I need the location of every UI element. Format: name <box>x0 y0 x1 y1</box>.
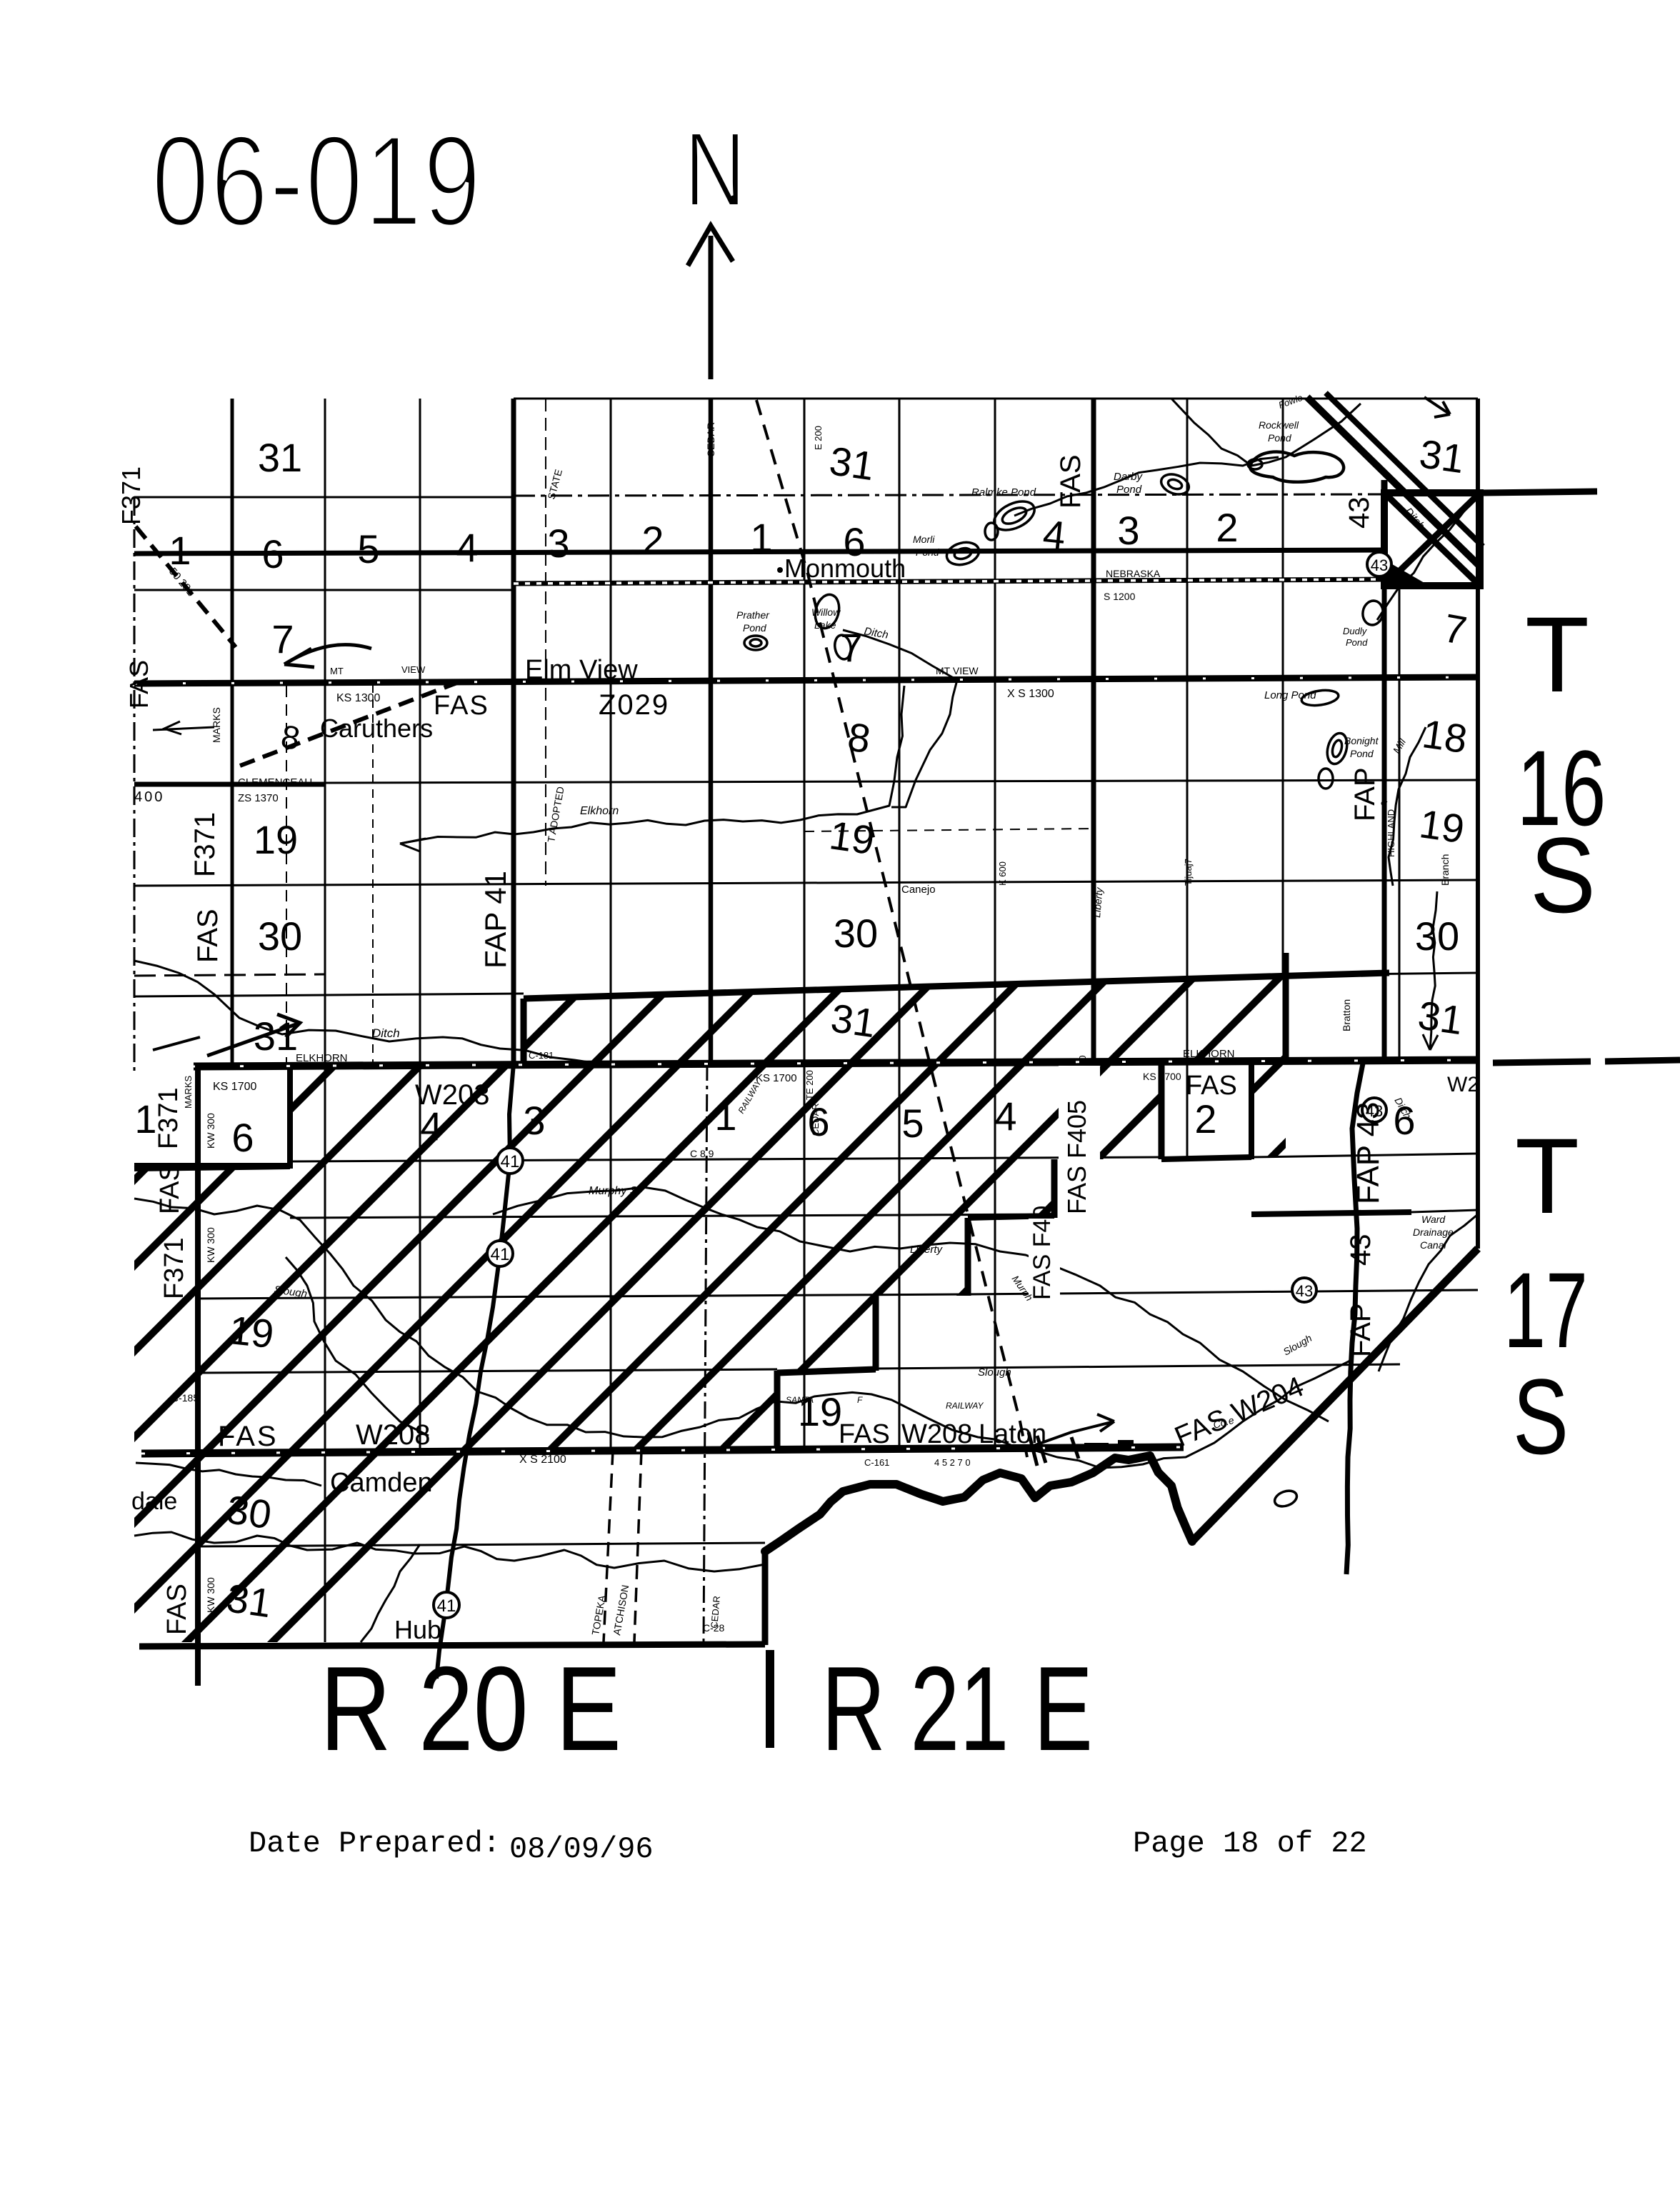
svg-text:7: 7 <box>840 625 862 670</box>
svg-text:43: 43 <box>1371 556 1388 574</box>
svg-text:S 1200: S 1200 <box>1104 591 1136 602</box>
svg-text:FAS F40: FAS F40 <box>1029 1206 1056 1300</box>
svg-text:T: T <box>1515 1116 1579 1236</box>
svg-text:W2: W2 <box>1447 1073 1479 1096</box>
svg-text:C-28: C-28 <box>703 1622 725 1634</box>
svg-text:FAP: FAP <box>1345 1303 1376 1357</box>
svg-text:Prather: Prather <box>736 609 770 621</box>
svg-text:E 200: E 200 <box>813 426 824 450</box>
svg-text:CLEMENCEAU: CLEMENCEAU <box>238 776 312 789</box>
svg-text:Pond: Pond <box>743 622 767 634</box>
svg-text:CEDAR: CEDAR <box>705 422 716 457</box>
svg-text:Rockwell: Rockwell <box>1259 419 1299 431</box>
svg-text:FAS: FAS <box>1186 1071 1237 1101</box>
svg-text:31: 31 <box>1416 431 1466 481</box>
svg-text:31: 31 <box>826 438 876 489</box>
svg-text:Pond: Pond <box>916 546 940 558</box>
svg-text:F371: F371 <box>189 812 221 877</box>
svg-text:41: 41 <box>437 1596 456 1616</box>
svg-text:Bonight: Bonight <box>1344 735 1379 746</box>
svg-text:19: 19 <box>826 812 876 863</box>
svg-text:4: 4 <box>456 525 478 570</box>
svg-text:C-181: C-181 <box>529 1050 554 1061</box>
svg-text:3: 3 <box>523 1098 545 1143</box>
svg-text:31: 31 <box>258 435 302 480</box>
svg-text:4: 4 <box>994 1094 1016 1139</box>
svg-text:Page 18 of 22: Page 18 of 22 <box>1133 1826 1367 1861</box>
svg-text:ELKHORN: ELKHORN <box>1183 1048 1235 1060</box>
svg-text:31: 31 <box>1415 992 1465 1043</box>
svg-text:T: T <box>1525 594 1589 714</box>
svg-text:08/09/96: 08/09/96 <box>509 1832 654 1866</box>
svg-text:FAS: FAS <box>124 660 154 709</box>
svg-text:W203: W203 <box>415 1079 490 1111</box>
svg-text:Date Prepared:: Date Prepared: <box>249 1826 501 1861</box>
svg-text:S: S <box>1513 1356 1569 1476</box>
svg-text:dale: dale <box>131 1488 177 1515</box>
svg-text:TE 200: TE 200 <box>804 1070 815 1100</box>
svg-text:Pond: Pond <box>1116 484 1142 496</box>
svg-text:FAS: FAS <box>434 691 489 721</box>
svg-text:Ward: Ward <box>1421 1214 1446 1225</box>
svg-text:Branch: Branch <box>1439 854 1451 886</box>
svg-text:Elkhorn: Elkhorn <box>580 805 619 817</box>
svg-text:KS 1300: KS 1300 <box>336 692 380 704</box>
svg-text:30: 30 <box>1415 914 1459 959</box>
svg-text:Murphy Sl: Murphy Sl <box>589 1185 640 1197</box>
svg-text:RAILWAY: RAILWAY <box>946 1401 984 1411</box>
svg-text:2: 2 <box>1216 505 1238 550</box>
svg-text:X S 1300: X S 1300 <box>1007 688 1054 700</box>
svg-text:MARKS: MARKS <box>183 1075 194 1109</box>
svg-text:Pond: Pond <box>1350 748 1374 759</box>
svg-text:6: 6 <box>231 1115 254 1160</box>
svg-text:S: S <box>1530 815 1596 935</box>
svg-text:X S 2100: X S 2100 <box>519 1454 566 1466</box>
svg-text:W208: W208 <box>356 1419 431 1451</box>
svg-text:C-161: C-161 <box>864 1457 889 1468</box>
svg-text:ZS 1370: ZS 1370 <box>238 792 279 804</box>
svg-text:ELKHORN: ELKHORN <box>296 1052 348 1064</box>
svg-text:Elm View: Elm View <box>525 655 638 685</box>
svg-text:VIEW: VIEW <box>401 664 426 675</box>
svg-text:FAS: FAS <box>1055 454 1086 509</box>
svg-text:Darby: Darby <box>1114 471 1144 483</box>
svg-text:1: 1 <box>714 1094 736 1139</box>
svg-text:FAP: FAP <box>1349 767 1381 821</box>
svg-text:30: 30 <box>258 914 302 959</box>
svg-text:F371: F371 <box>154 1087 184 1149</box>
svg-text:MARKS: MARKS <box>211 707 222 743</box>
svg-text:F: F <box>857 1395 863 1405</box>
svg-text:Canejo: Canejo <box>901 884 936 896</box>
svg-text:FAS: FAS <box>839 1419 890 1449</box>
svg-text:17: 17 <box>1504 1250 1588 1370</box>
svg-text:FAS: FAS <box>162 1584 192 1635</box>
svg-text:MT VIEW: MT VIEW <box>936 665 979 676</box>
svg-text:400: 400 <box>134 789 164 805</box>
svg-text:KS 1700: KS 1700 <box>1143 1071 1181 1082</box>
svg-text:R 21 E: R 21 E <box>821 1641 1093 1776</box>
svg-text:Morli: Morli <box>913 534 935 545</box>
svg-text:19: 19 <box>254 817 298 862</box>
svg-text:Long Pond: Long Pond <box>1264 689 1316 701</box>
svg-text:Canal: Canal <box>1420 1239 1446 1251</box>
svg-text:F371: F371 <box>116 466 146 525</box>
svg-text:FAP 41: FAP 41 <box>479 871 512 969</box>
svg-text:5: 5 <box>357 526 379 571</box>
svg-text:4: 4 <box>1041 511 1068 559</box>
svg-text:Drainage: Drainage <box>1413 1226 1454 1238</box>
svg-text:Caruthers: Caruthers <box>320 714 433 743</box>
svg-text:Monmouth: Monmouth <box>784 554 906 583</box>
svg-text:06-019: 06-019 <box>151 108 482 253</box>
svg-text:Z029: Z029 <box>599 689 669 721</box>
svg-text:Pond: Pond <box>1268 432 1292 444</box>
svg-text:43: 43 <box>1344 497 1375 529</box>
svg-text:Ralmke Pond: Ralmke Pond <box>971 486 1036 499</box>
svg-text:FAS F405: FAS F405 <box>1062 1100 1091 1214</box>
svg-text:3: 3 <box>547 521 569 566</box>
svg-text:Pond: Pond <box>1346 637 1368 648</box>
svg-text:18: 18 <box>1419 711 1469 761</box>
svg-text:KW 300: KW 300 <box>205 1113 216 1149</box>
svg-text:6: 6 <box>261 531 284 576</box>
svg-text:30: 30 <box>224 1486 274 1537</box>
svg-text:F371: F371 <box>159 1237 189 1299</box>
svg-text:K 600: K 600 <box>997 861 1008 886</box>
svg-text:C-185: C-185 <box>171 1392 199 1404</box>
svg-text:43: 43 <box>1345 1234 1376 1266</box>
svg-text:FAS: FAS <box>155 1163 185 1214</box>
svg-text:2: 2 <box>641 518 664 563</box>
svg-text:2: 2 <box>1194 1096 1216 1141</box>
svg-text:19: 19 <box>1416 801 1466 851</box>
svg-text:C 8 9: C 8 9 <box>690 1148 714 1159</box>
svg-text:Willow: Willow <box>811 606 841 618</box>
svg-text:Ditch: Ditch <box>372 1026 400 1040</box>
svg-text:Hub: Hub <box>394 1615 441 1644</box>
svg-text:Liberty: Liberty <box>910 1244 944 1256</box>
svg-text:NEBRASKA: NEBRASKA <box>1106 568 1161 579</box>
svg-text:43: 43 <box>1296 1282 1313 1300</box>
svg-text:KW 300: KW 300 <box>205 1227 216 1263</box>
svg-text:CEDAR: CEDAR <box>810 1103 821 1136</box>
svg-text:4 5 2 7 0: 4 5 2 7 0 <box>934 1457 971 1468</box>
svg-text:41: 41 <box>501 1152 520 1171</box>
svg-text:7: 7 <box>271 616 294 661</box>
svg-text:N: N <box>684 111 746 229</box>
svg-text:Tijuaj7: Tijuaj7 <box>1183 859 1194 886</box>
svg-text:31: 31 <box>828 995 878 1046</box>
svg-text:1: 1 <box>169 528 191 573</box>
svg-text:HIGHLAND: HIGHLAND <box>1386 809 1396 857</box>
svg-text:30: 30 <box>834 911 878 956</box>
svg-text:KW 300: KW 300 <box>205 1577 216 1613</box>
svg-text:31: 31 <box>224 1575 274 1626</box>
svg-text:FAS: FAS <box>218 1421 279 1452</box>
svg-text:Dudly: Dudly <box>1343 626 1368 636</box>
svg-text:KS 1700: KS 1700 <box>213 1081 256 1093</box>
svg-text:R 20 E: R 20 E <box>320 1641 621 1776</box>
svg-text:1: 1 <box>750 515 772 560</box>
svg-text:Slough: Slough <box>978 1366 1011 1379</box>
svg-text:5: 5 <box>901 1101 924 1146</box>
svg-text:Bratton: Bratton <box>1341 999 1352 1031</box>
svg-text:19: 19 <box>227 1307 276 1356</box>
svg-text:3: 3 <box>1117 508 1139 553</box>
svg-text:FAP 43: FAP 43 <box>1351 1101 1386 1204</box>
svg-text:MT: MT <box>330 666 344 676</box>
svg-text:FAS: FAS <box>192 909 224 963</box>
svg-text:W208: W208 <box>901 1419 972 1449</box>
svg-text:SANTA: SANTA <box>786 1395 814 1405</box>
svg-text:41: 41 <box>491 1245 510 1264</box>
svg-text:Camden: Camden <box>330 1468 433 1498</box>
svg-text:Lake: Lake <box>814 619 836 631</box>
